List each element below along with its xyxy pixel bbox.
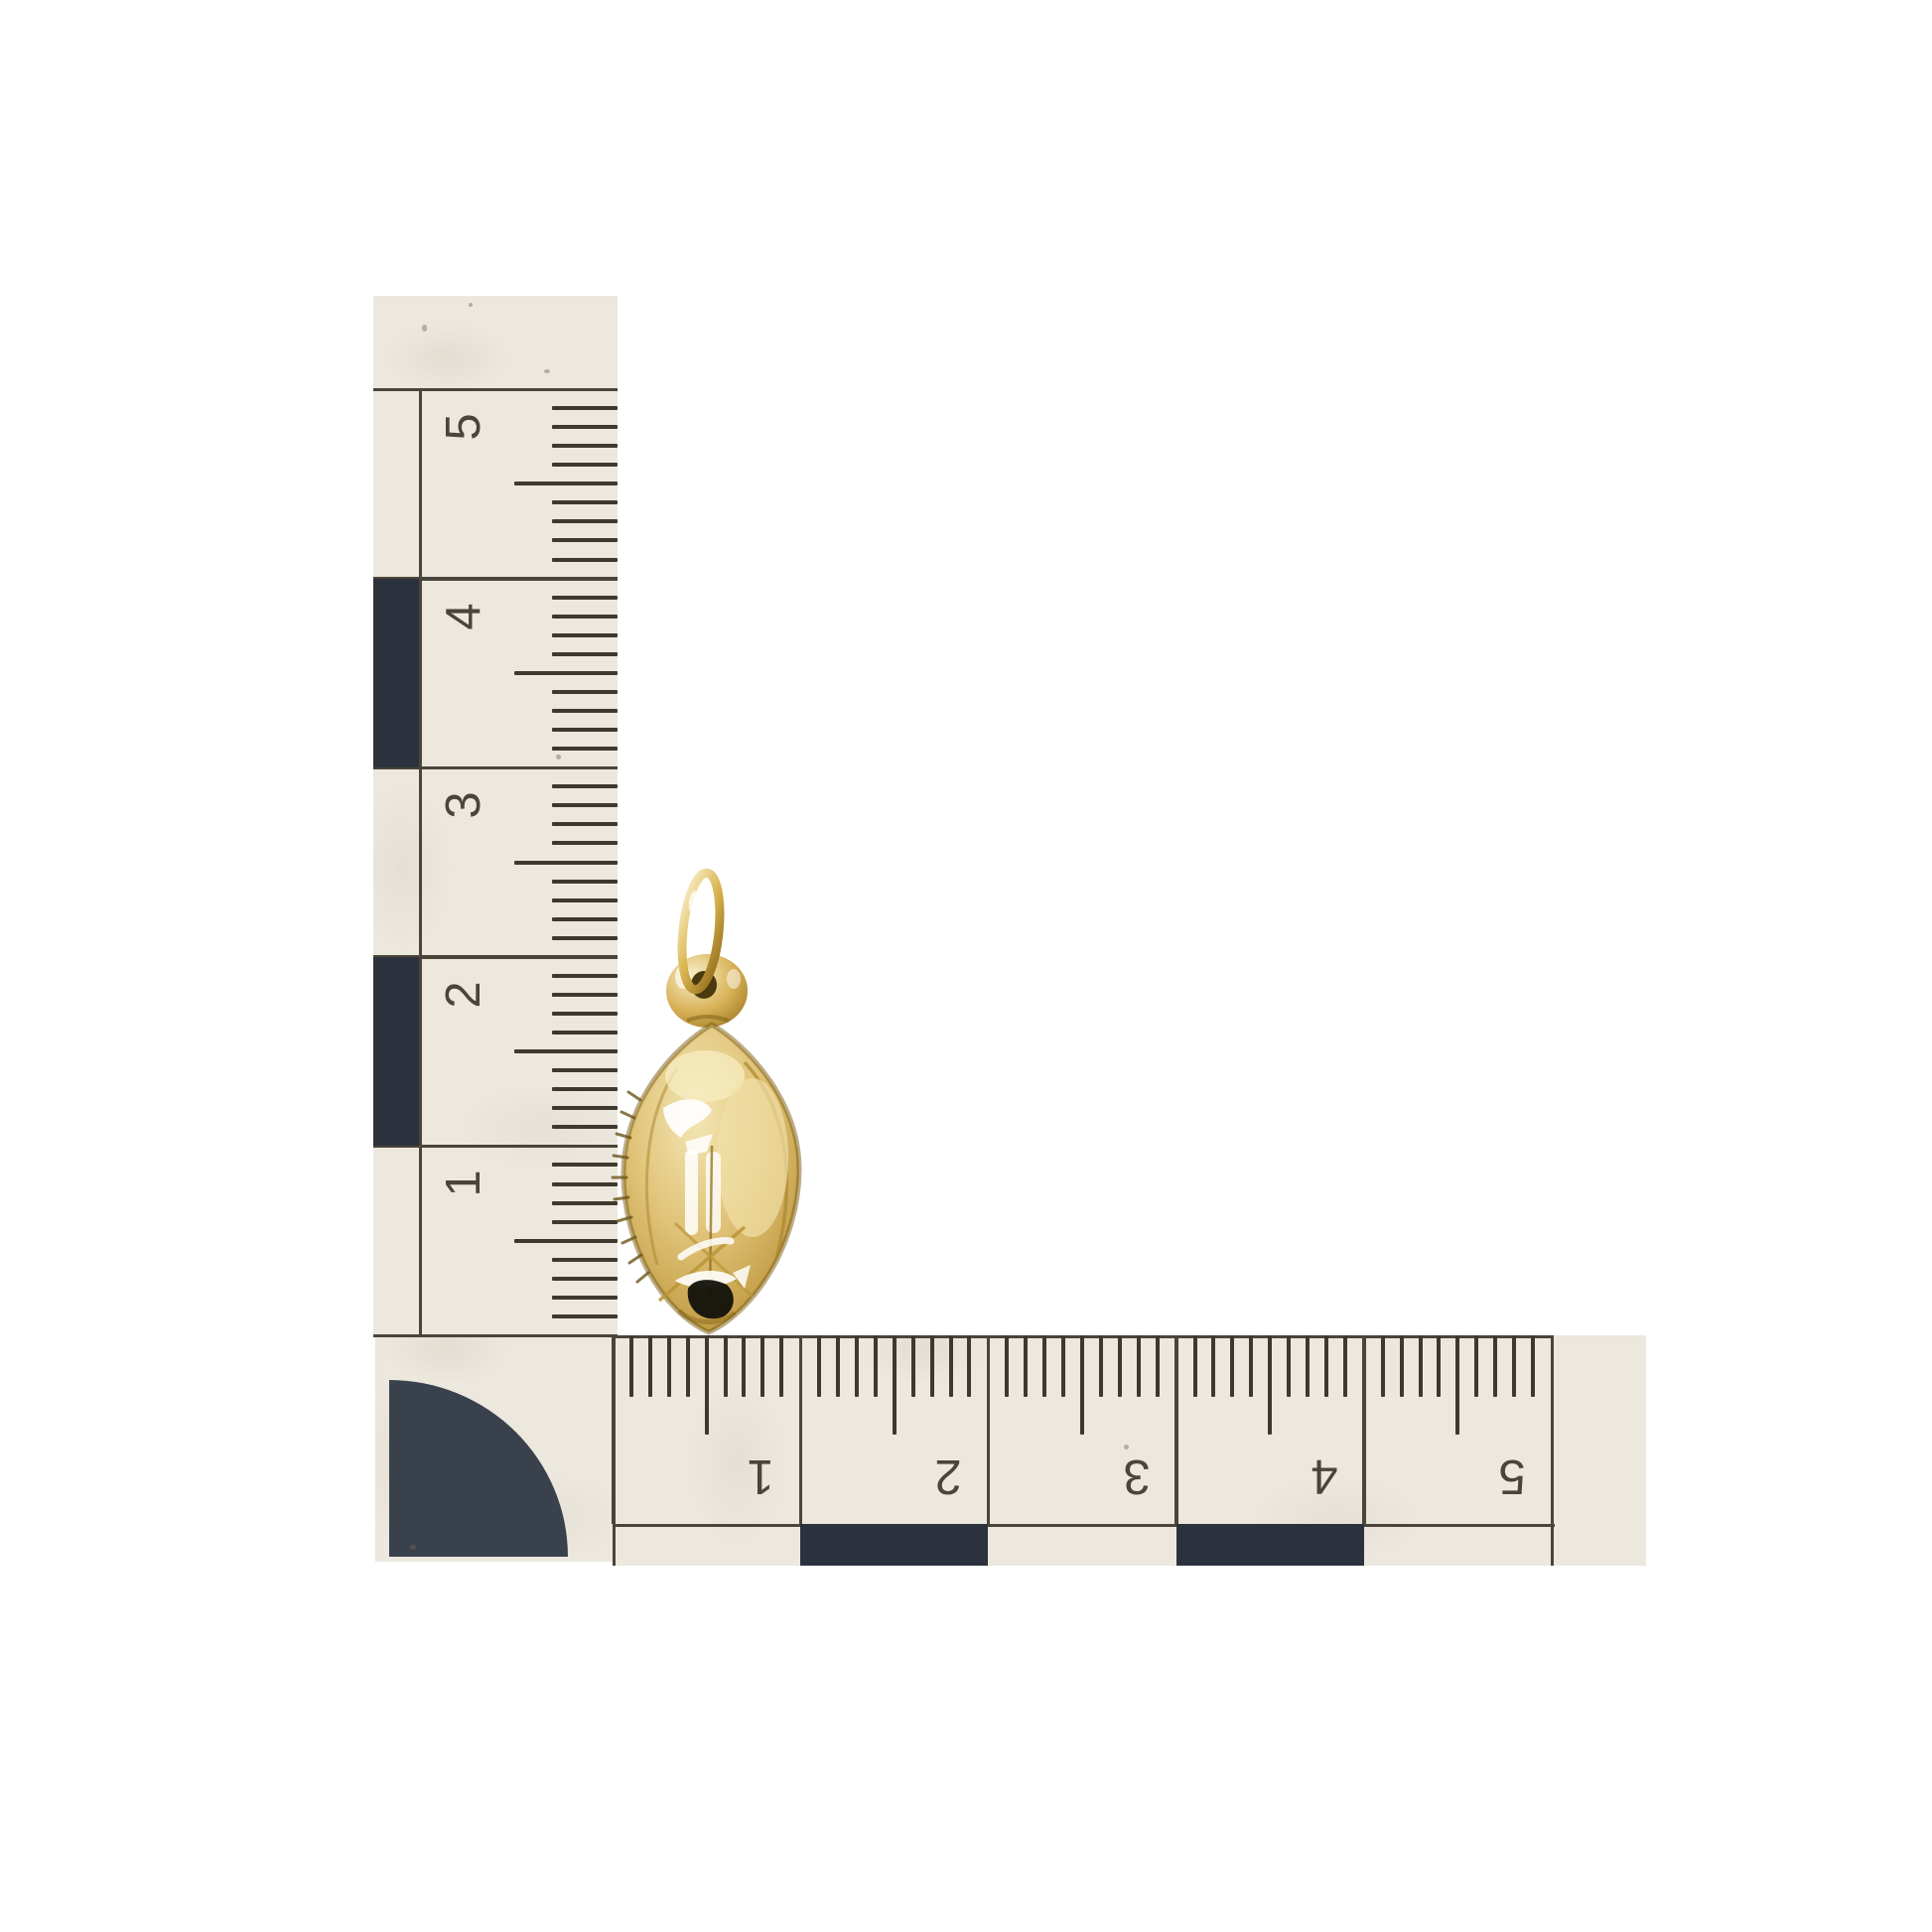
mm-tick — [836, 1335, 840, 1397]
cm-number-label: 3 — [1107, 1447, 1167, 1506]
cm-line — [1362, 1335, 1366, 1524]
mm-tick — [552, 615, 618, 619]
mm-tick — [552, 519, 618, 523]
mm-tick — [1493, 1335, 1497, 1397]
mm-tick — [874, 1335, 878, 1397]
mm-tick — [1118, 1335, 1122, 1397]
mm-tick — [552, 709, 618, 713]
dust-speck — [422, 325, 427, 332]
cm-number-label: 3 — [434, 775, 493, 835]
mm-tick — [911, 1335, 915, 1397]
cm-number-label: 5 — [1482, 1447, 1542, 1506]
mm-tick — [1400, 1335, 1404, 1397]
cm-line — [1551, 1335, 1555, 1566]
mm-tick — [1306, 1335, 1310, 1397]
cm-line — [799, 1335, 803, 1524]
photo-scene: cm 54321 cm 12345 — [0, 0, 1932, 1932]
mm-tick — [1437, 1335, 1441, 1397]
gold-football-charm — [594, 852, 822, 1348]
half-cm-tick — [514, 671, 618, 675]
cm-number-label: 1 — [731, 1447, 790, 1506]
mm-tick — [1042, 1335, 1046, 1397]
cm-number-label: 5 — [434, 397, 493, 457]
dust-speck — [556, 755, 561, 759]
dust-speck — [410, 1545, 416, 1550]
cm-number-label: 2 — [918, 1447, 978, 1506]
mm-tick — [552, 633, 618, 637]
mm-tick — [552, 841, 618, 845]
mm-tick — [552, 690, 618, 694]
mm-tick — [1099, 1335, 1103, 1397]
mm-tick — [967, 1335, 971, 1397]
mm-tick — [855, 1335, 859, 1397]
mm-tick — [552, 822, 618, 826]
mm-tick — [1474, 1335, 1478, 1397]
horizontal-ruler: cm 12345 — [613, 1335, 1646, 1567]
cm-line — [373, 388, 618, 392]
checker-dark-block — [1176, 1524, 1364, 1566]
mm-tick — [552, 728, 618, 732]
mm-tick — [1024, 1335, 1028, 1397]
cm-number-label: 2 — [434, 965, 493, 1025]
mm-tick — [552, 652, 618, 656]
bail-highlight — [727, 969, 741, 989]
mm-tick — [552, 538, 618, 542]
cm-line — [373, 1334, 618, 1338]
mm-tick — [552, 784, 618, 788]
checker-dark-block — [373, 957, 419, 1147]
dust-speck — [1124, 1445, 1129, 1449]
mm-tick — [552, 558, 618, 562]
mm-tick — [552, 444, 618, 448]
mm-tick — [1061, 1335, 1065, 1397]
mm-tick — [1156, 1335, 1160, 1397]
mm-tick — [1381, 1335, 1385, 1397]
mm-tick — [1193, 1335, 1197, 1397]
mm-tick — [1531, 1335, 1535, 1397]
mm-tick — [552, 747, 618, 751]
mm-tick — [1419, 1335, 1423, 1397]
checker-separator-line — [419, 389, 422, 1335]
mm-tick — [552, 425, 618, 429]
half-cm-tick — [1455, 1335, 1459, 1435]
mm-tick — [552, 803, 618, 807]
half-cm-tick — [893, 1335, 897, 1435]
cm-number-label: 4 — [1295, 1447, 1354, 1506]
reflection-bar — [685, 1150, 698, 1235]
half-cm-tick — [705, 1335, 709, 1435]
mm-tick — [1137, 1335, 1141, 1397]
reflection-bar — [706, 1152, 721, 1233]
half-cm-tick — [514, 482, 618, 485]
right-glow — [717, 1078, 788, 1237]
mm-tick — [1287, 1335, 1291, 1397]
cm-line — [612, 1335, 616, 1524]
mm-tick — [949, 1335, 953, 1397]
half-cm-tick — [1268, 1335, 1272, 1435]
mm-tick — [930, 1335, 934, 1397]
mm-tick — [1249, 1335, 1253, 1397]
mm-tick — [552, 406, 618, 410]
mm-tick — [1005, 1335, 1009, 1397]
ruler-body — [373, 296, 618, 1335]
cm-number-label: 1 — [434, 1154, 493, 1213]
ruler-inner-line — [613, 1524, 1555, 1527]
mm-tick — [552, 463, 618, 467]
half-cm-tick — [1080, 1335, 1084, 1435]
cm-line — [1174, 1335, 1178, 1524]
cm-number-label: 4 — [434, 587, 493, 646]
vertical-ruler: cm 54321 — [373, 296, 618, 1564]
dust-speck — [469, 303, 473, 307]
dust-speck — [544, 369, 550, 373]
mm-tick — [1512, 1335, 1516, 1397]
mm-tick — [1324, 1335, 1328, 1397]
mm-tick — [1230, 1335, 1234, 1397]
mm-tick — [1211, 1335, 1215, 1397]
mm-tick — [552, 500, 618, 504]
checker-dark-block — [373, 579, 419, 768]
mm-tick — [1343, 1335, 1347, 1397]
cm-line — [987, 1335, 991, 1524]
mm-tick — [552, 596, 618, 600]
checker-dark-block — [800, 1524, 988, 1566]
